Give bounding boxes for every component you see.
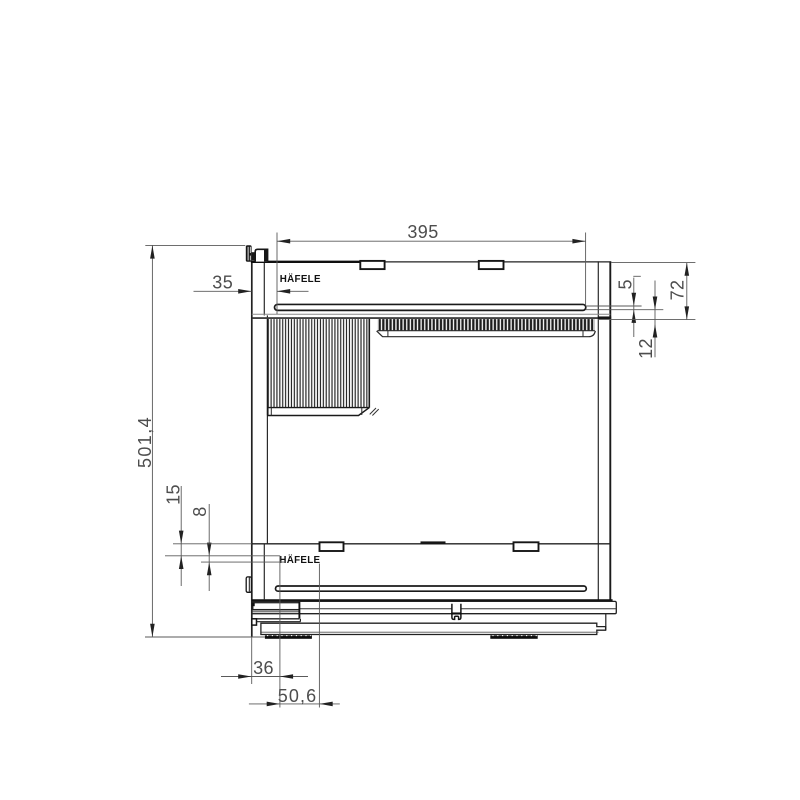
svg-text:50,6: 50,6 (278, 686, 317, 706)
svg-text:72: 72 (667, 280, 687, 301)
svg-text:5: 5 (615, 279, 635, 289)
svg-text:12: 12 (636, 338, 656, 359)
svg-text:501,4: 501,4 (135, 416, 155, 468)
svg-text:8: 8 (190, 506, 210, 516)
svg-text:35: 35 (212, 273, 233, 293)
svg-text:HÄFELE: HÄFELE (280, 274, 321, 285)
svg-text:15: 15 (164, 484, 184, 505)
svg-text:395: 395 (407, 222, 438, 242)
svg-text:36: 36 (253, 658, 274, 678)
svg-text:HÄFELE: HÄFELE (279, 555, 320, 566)
